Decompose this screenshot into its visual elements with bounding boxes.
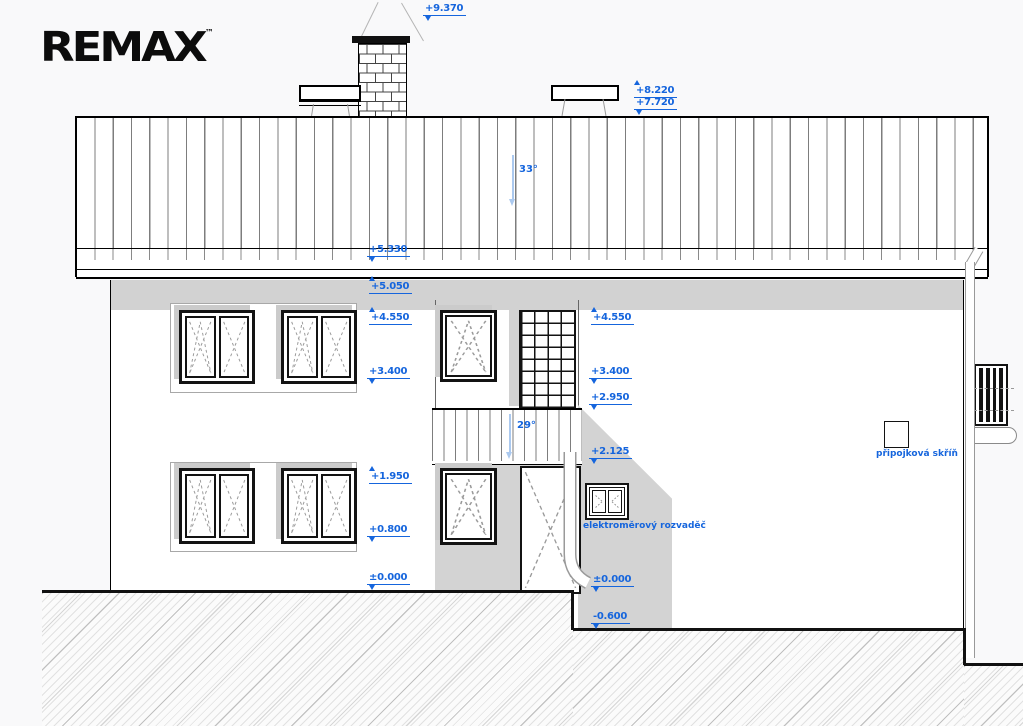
- level-marker-icon: [634, 80, 640, 85]
- vent2-leg: [562, 99, 566, 116]
- level-marker-icon: [593, 587, 599, 592]
- level-marker-icon: [593, 624, 599, 629]
- terrain-step-right: [963, 628, 966, 665]
- fascia-board: [76, 270, 988, 279]
- bay-edge-right: [578, 300, 579, 408]
- elevation-mark: +2.125: [589, 446, 632, 459]
- roof-slope-value: 33°: [519, 164, 538, 175]
- elevation-drawing-sheet: REMAX™: [0, 0, 1023, 726]
- level-marker-icon: [636, 110, 642, 115]
- window-sash-tilt-turn: [185, 316, 216, 378]
- level-marker-icon: [369, 537, 375, 542]
- window-sash-tilt-turn: [185, 474, 216, 538]
- bay-window-lower: [440, 468, 497, 545]
- level-marker-icon: [369, 307, 375, 312]
- slope-arrow-icon: [512, 155, 514, 199]
- window-sash-tilt-turn: [287, 474, 318, 538]
- elevation-mark: +5.330: [367, 244, 410, 257]
- level-marker-icon: [369, 466, 375, 471]
- glass-grid-shadow: [509, 310, 519, 406]
- elevation-mark: +3.400: [367, 366, 410, 379]
- meter-board-label: elektroměrový rozvaděč: [583, 521, 706, 531]
- elevation-mark: +4.550: [591, 312, 634, 325]
- level-marker-icon: [369, 379, 375, 384]
- terrain-step-entrance: [571, 590, 574, 630]
- wall-edge-left: [110, 280, 111, 590]
- brick-pattern: [359, 44, 406, 117]
- main-roof: [76, 116, 988, 250]
- roof-edge-left: [75, 116, 77, 277]
- level-marker-icon: [369, 276, 375, 281]
- elevation-mark: +7.720: [634, 97, 677, 110]
- window-lower-1: [179, 468, 255, 544]
- window-lower-2: [281, 468, 357, 544]
- connection-box-label: připojková skříň: [876, 449, 958, 459]
- vent2-leg: [603, 99, 607, 116]
- window-sash-casement: [219, 316, 250, 378]
- downspout-right: [965, 262, 975, 658]
- balcony-railing: [974, 364, 1008, 426]
- window-sash-tilt-turn: [287, 316, 318, 378]
- glass-block-grid: [519, 310, 576, 410]
- window-upper-2: [281, 310, 357, 384]
- roof-edge-right: [987, 116, 989, 277]
- level-marker-icon: [591, 405, 597, 410]
- railing-baluster: [986, 368, 990, 422]
- elevation-mark: +2.950: [589, 392, 632, 405]
- elevation-mark: +3.400: [589, 366, 632, 379]
- window-sash-casement: [219, 474, 250, 538]
- level-marker-icon: [591, 379, 597, 384]
- bay-window-upper: [440, 310, 497, 382]
- railing-dash-line: [974, 388, 1014, 389]
- bay-edge-left: [435, 300, 436, 408]
- remax-logo: REMAX™: [40, 26, 214, 67]
- window-sash-casement: [321, 316, 352, 378]
- meter-board-box: [585, 483, 629, 520]
- chimney-cap: [352, 36, 410, 43]
- elevation-mark: -0.600: [591, 611, 630, 624]
- elevation-mark: +5.050: [369, 281, 412, 294]
- remax-logo-text: REMAX: [40, 22, 205, 71]
- terrain-left: [42, 590, 573, 726]
- window-upper-1: [179, 310, 255, 384]
- brick-chimney: [358, 43, 407, 118]
- meter-cell: [608, 490, 622, 513]
- window-sash-casement: [321, 474, 352, 538]
- elevation-mark: +1.950: [369, 471, 412, 484]
- remax-logo-trademark: ™: [205, 29, 214, 38]
- meter-cell: [592, 490, 606, 513]
- railing-dash-line: [974, 410, 1014, 411]
- roof-vent-cap: [299, 85, 361, 101]
- terrain-right: [964, 663, 1023, 726]
- connection-box: [884, 421, 909, 448]
- level-marker-icon: [369, 257, 375, 262]
- roof-vent2-cap: [551, 85, 619, 101]
- railing-baluster: [999, 368, 1003, 422]
- elevation-mark: +0.800: [367, 524, 410, 537]
- elevation-mark: ±0.000: [367, 572, 410, 585]
- roof-vent-base: [299, 101, 361, 106]
- level-marker-icon: [425, 16, 431, 21]
- terrain-middle: [573, 628, 964, 726]
- balcony-beam: [973, 427, 1017, 444]
- level-marker-icon: [369, 585, 375, 590]
- railing-baluster: [993, 368, 997, 422]
- railing-baluster: [979, 368, 983, 422]
- porch-slope-value: 29°: [517, 420, 536, 431]
- elevation-mark: +9.370: [423, 3, 466, 16]
- level-marker-icon: [591, 307, 597, 312]
- elevation-mark: ±0.000: [591, 574, 634, 587]
- slope-arrowhead-icon: [506, 452, 512, 459]
- window-sash-tilt-turn: [445, 473, 492, 540]
- eave-band: [76, 260, 988, 270]
- slope-arrow-icon: [509, 414, 511, 452]
- slope-arrowhead-icon: [509, 199, 515, 206]
- wall-edge-right: [963, 280, 964, 628]
- window-sash-tilt-turn: [445, 315, 492, 377]
- elevation-mark: +4.550: [369, 312, 412, 325]
- meter-board-inner: [589, 487, 625, 516]
- level-marker-icon: [591, 459, 597, 464]
